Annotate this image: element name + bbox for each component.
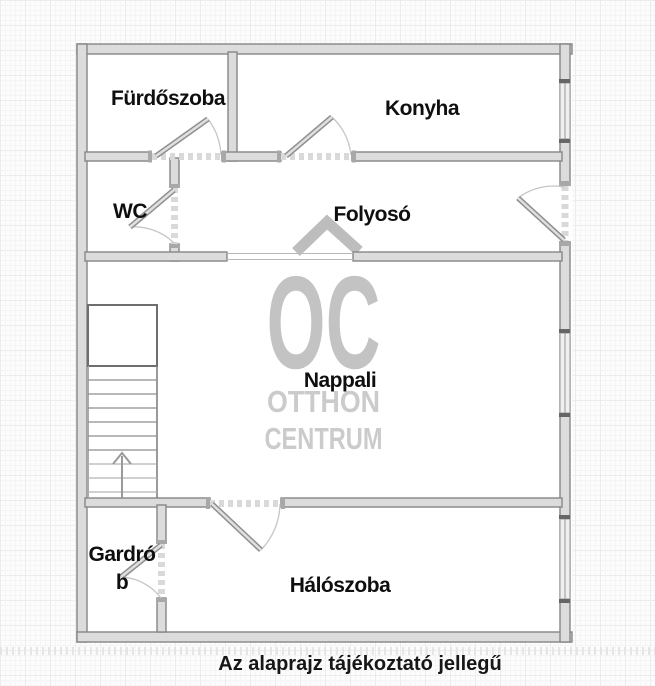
- window-living-room: [559, 329, 570, 417]
- watermark-line2: CENTRUM: [265, 421, 383, 456]
- wall-bathroom-south-b: [222, 152, 281, 161]
- window-bedroom: [559, 515, 570, 603]
- wall-exterior-bottom: [77, 632, 572, 642]
- room-label-bathroom: Fürdőszoba: [111, 87, 225, 111]
- wall-living-south-a: [85, 498, 210, 507]
- wall-hall-south-a: [85, 252, 227, 261]
- room-label-living-room: Nappali: [304, 369, 376, 393]
- floor-plan-page: OC OTTHON CENTRUM: [0, 0, 655, 686]
- wall-living-south-b: [281, 498, 562, 507]
- room-label-wardrobe: Gardrób: [85, 541, 159, 597]
- plan-disclaimer-caption: Az alaprajz tájékoztató jellegű: [218, 653, 501, 676]
- room-label-wc: WC: [113, 200, 147, 224]
- wall-hall-south-b: [353, 252, 562, 261]
- wall-kitchen-south: [352, 152, 562, 161]
- wall-exterior-top: [77, 44, 572, 54]
- stair-landing: [88, 305, 157, 366]
- window-kitchen: [559, 79, 570, 143]
- room-label-kitchen: Konyha: [385, 97, 459, 121]
- wall-wc-east-a: [170, 158, 179, 187]
- wall-bathroom-kitchen: [228, 52, 237, 161]
- room-label-hall: Folyosó: [333, 203, 410, 227]
- wall-bathroom-south-a: [85, 152, 150, 161]
- wall-wardrobe-east-b: [157, 598, 166, 632]
- room-label-bedroom: Hálószoba: [290, 574, 391, 598]
- wall-wardrobe-east-a: [157, 505, 166, 543]
